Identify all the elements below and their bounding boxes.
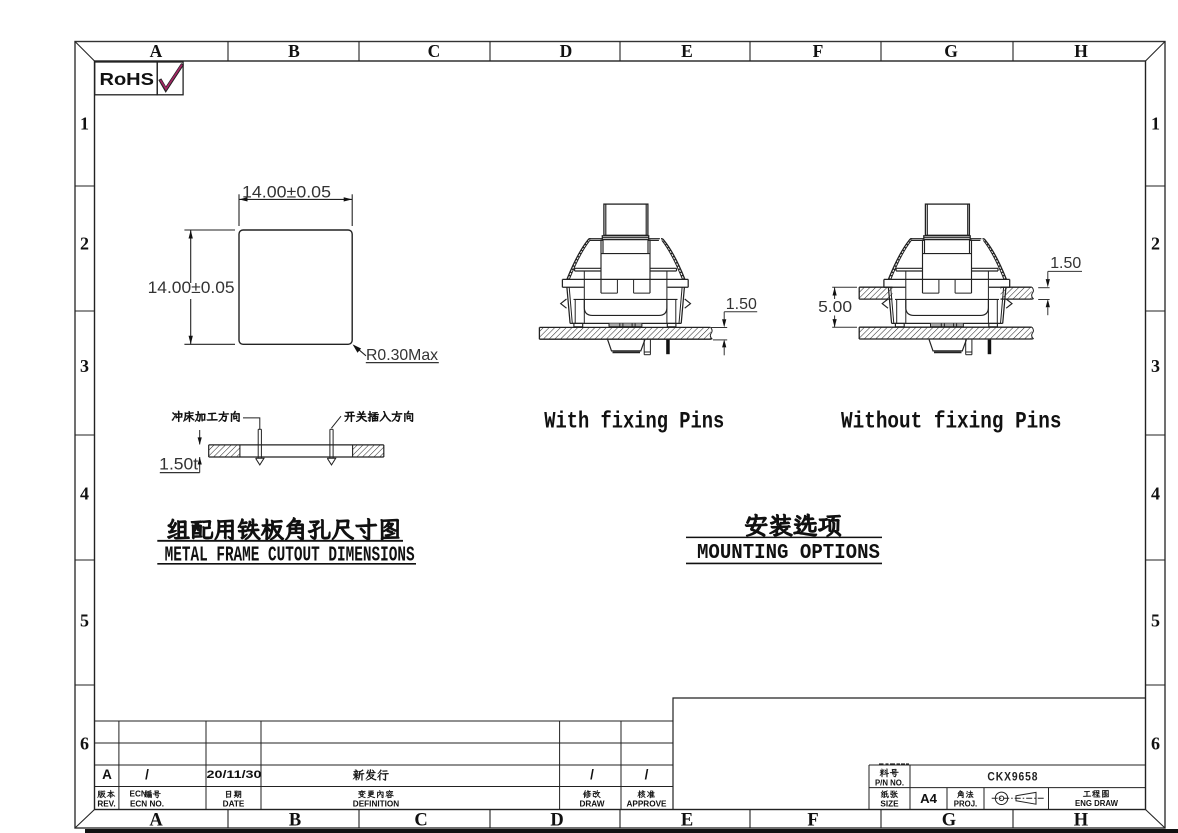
svg-text:A: A [102,767,112,782]
svg-text:APPROVE: APPROVE [626,800,667,809]
svg-text:4: 4 [1151,484,1160,504]
svg-text:C: C [414,811,427,831]
svg-text:With fixing Pins: With fixing Pins [544,408,724,435]
svg-text:ECN NO.: ECN NO. [130,800,164,809]
svg-text:D: D [550,811,563,831]
svg-text:3: 3 [80,356,89,376]
svg-text:5: 5 [1151,611,1160,631]
svg-text:R0.30Max: R0.30Max [366,347,438,364]
svg-text:CKX9658: CKX9658 [987,771,1038,784]
svg-text:14.00±0.05: 14.00±0.05 [148,279,235,297]
svg-text:14.00±0.05: 14.00±0.05 [242,183,331,201]
svg-text:1: 1 [1151,114,1160,134]
svg-text:A: A [150,41,163,61]
svg-text:Without fixing Pins: Without fixing Pins [841,408,1062,435]
svg-text:F: F [807,811,818,831]
svg-text:B: B [288,41,300,61]
svg-text:G: G [942,811,956,831]
svg-text:3: 3 [1151,356,1160,376]
svg-text:/: / [145,767,149,782]
svg-text:MOUNTING OPTIONS: MOUNTING OPTIONS [697,541,880,565]
svg-text:1.50: 1.50 [1050,255,1081,272]
svg-text:/: / [590,767,594,782]
svg-text:DEFINITION: DEFINITION [353,800,399,809]
svg-text:F: F [813,41,824,61]
svg-text:RoHS: RoHS [100,69,155,89]
svg-text:5.00: 5.00 [818,299,852,316]
svg-text:SIZE: SIZE [880,800,899,809]
svg-text:G: G [944,41,958,61]
svg-text:ECN: ECN [130,789,147,798]
svg-text:D: D [560,41,573,61]
svg-text:A: A [149,811,163,831]
svg-text:E: E [681,41,693,61]
svg-text:A4: A4 [920,791,938,806]
svg-text:P/N NO.: P/N NO. [875,779,904,788]
svg-text:PROJ.: PROJ. [954,800,977,809]
svg-text:5: 5 [80,611,89,631]
svg-text:2: 2 [80,234,89,254]
svg-text:H: H [1074,811,1089,831]
svg-text:ENG DRAW: ENG DRAW [1075,799,1119,808]
svg-text:1.50t: 1.50t [159,455,198,473]
svg-text:H: H [1074,41,1088,61]
svg-text:REV.: REV. [97,800,115,809]
svg-text:DATE: DATE [223,800,245,809]
svg-text:2: 2 [1151,234,1160,254]
svg-text:DRAW: DRAW [579,800,604,809]
svg-text:C: C [428,41,441,61]
svg-text:E: E [681,811,693,831]
svg-text:20/11/30: 20/11/30 [207,769,262,781]
svg-text:1: 1 [80,114,89,134]
svg-text:6: 6 [80,734,89,754]
svg-text:4: 4 [80,484,89,504]
svg-text:/: / [645,767,649,782]
svg-text:B: B [289,811,301,831]
svg-text:6: 6 [1151,734,1160,754]
svg-text:1.50: 1.50 [726,296,757,313]
